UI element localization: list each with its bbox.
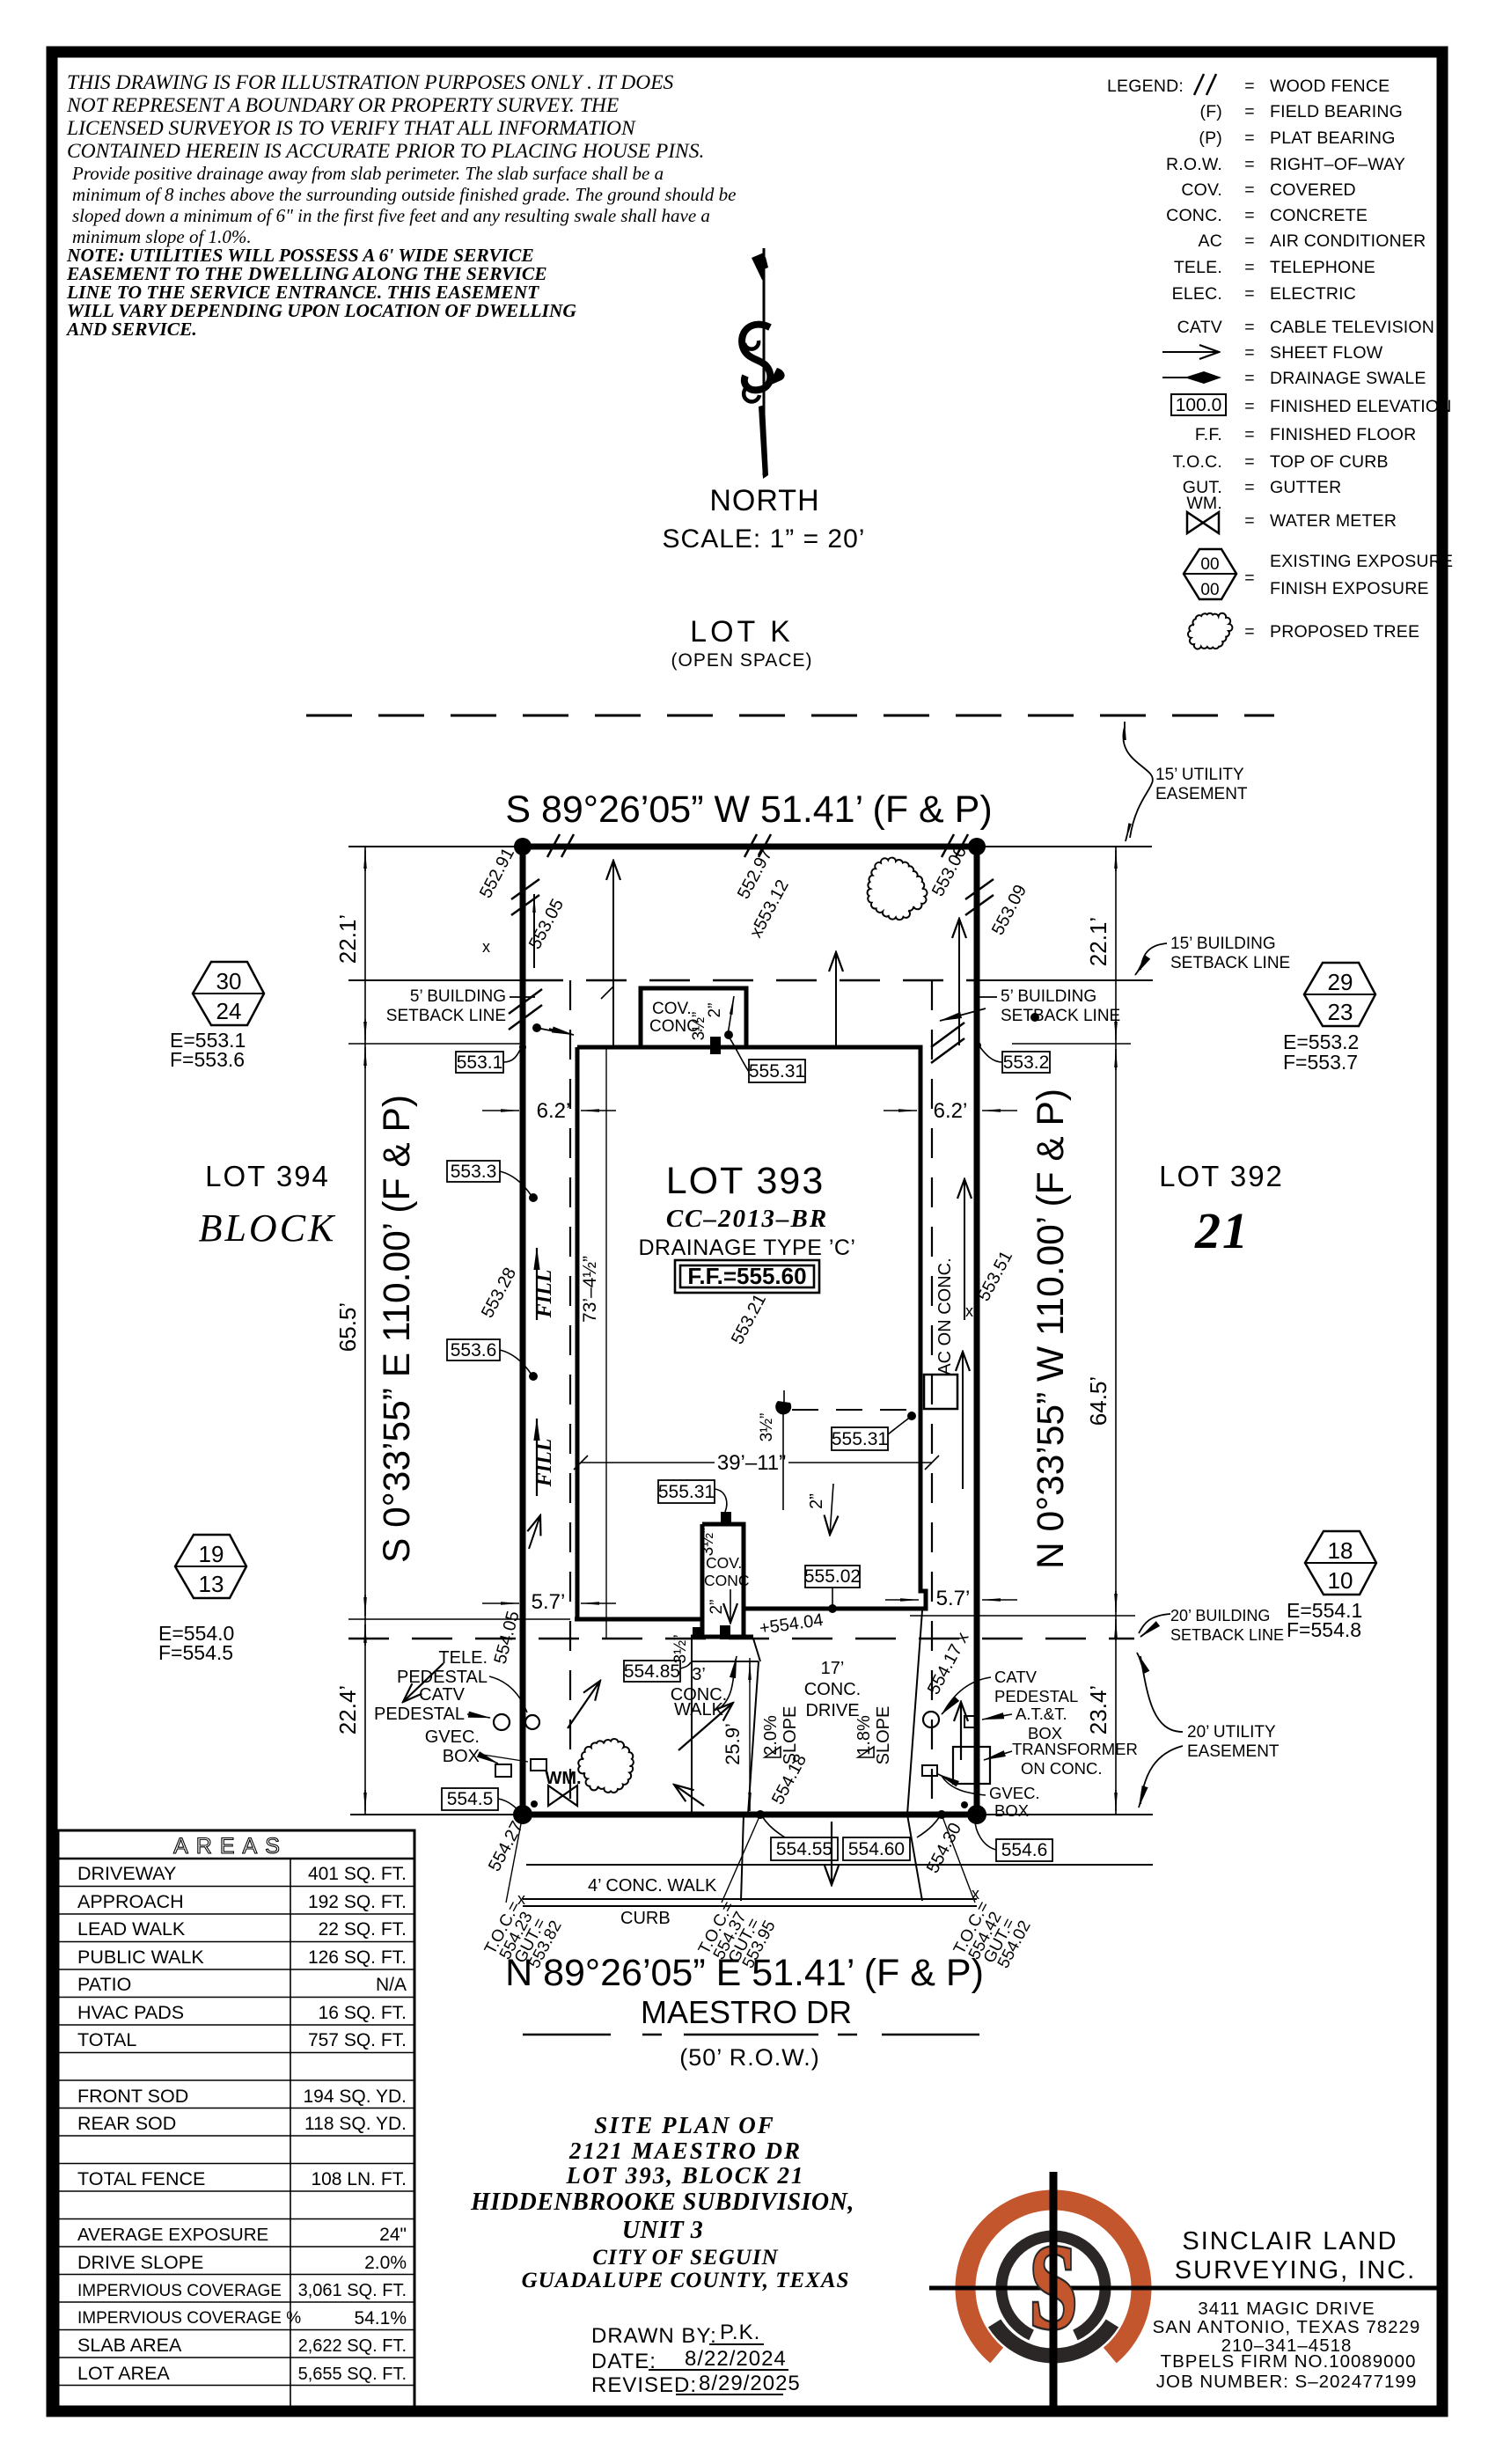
svg-text:=: = [1244,231,1255,251]
svg-text:5,655 SQ. FT.: 5,655 SQ. FT. [298,2365,407,2384]
svg-text:=: = [1244,128,1255,148]
svg-text:PATIO: PATIO [77,1974,131,1995]
svg-text:22.1’: 22.1’ [334,914,361,964]
svg-text:SAN ANTONIO, TEXAS 78229: SAN ANTONIO, TEXAS 78229 [1153,2317,1421,2337]
svg-text:23: 23 [1328,999,1353,1025]
svg-text:401 SQ. FT.: 401 SQ. FT. [308,1864,407,1884]
svg-text:=: = [1244,369,1255,388]
svg-text:=: = [1244,343,1255,363]
svg-text:=: = [1244,425,1255,444]
svg-text:3,061 SQ. FT.: 3,061 SQ. FT. [298,2281,407,2300]
svg-text:39’–11”: 39’–11” [717,1451,786,1475]
svg-text:CATV: CATV [994,1668,1038,1686]
svg-text:2”: 2” [807,1493,826,1509]
svg-text:WATER METER: WATER METER [1270,511,1397,531]
svg-text:CATV: CATV [1177,318,1222,337]
svg-text:555.02: 555.02 [804,1566,861,1587]
svg-text:UNIT 3: UNIT 3 [622,2217,703,2244]
svg-text:AIR CONDITIONER: AIR CONDITIONER [1270,231,1426,251]
svg-text:00: 00 [1200,581,1219,599]
svg-text:757 SQ. FT.: 757 SQ. FT. [308,2030,407,2050]
svg-text:SLAB AREA: SLAB AREA [77,2335,182,2356]
svg-text:16 SQ. FT.: 16 SQ. FT. [319,2003,407,2023]
svg-text:R.O.W.: R.O.W. [1166,155,1222,174]
svg-text:126 SQ. FT.: 126 SQ. FT. [308,1947,407,1968]
svg-text:SINCLAIR LAND: SINCLAIR LAND [1182,2227,1397,2255]
svg-text:65.5’: 65.5’ [334,1302,361,1352]
svg-text:SLOPE: SLOPE [874,1706,893,1765]
svg-text:FINISHED ELEVATION: FINISHED ELEVATION [1270,397,1452,416]
svg-text:AC: AC [1199,231,1223,251]
svg-text:N 89°26’05” E 51.41’ (F &: N 89°26’05” E 51.41’ (F & P) [505,1952,984,1994]
svg-text:553.6: 553.6 [451,1340,497,1360]
svg-text:GUADALUPE COUNTY, TEXAS: GUADALUPE COUNTY, TEXAS [522,2269,850,2292]
svg-text:F=553.6: F=553.6 [170,1048,245,1071]
svg-text:3411 MAGIC DRIVE: 3411 MAGIC DRIVE [1198,2299,1375,2319]
svg-text:CATV: CATV [419,1685,466,1705]
svg-text:TOP OF CURB: TOP OF CURB [1270,452,1389,472]
svg-text:ON CONC.: ON CONC. [1021,1759,1103,1778]
svg-text:x: x [482,938,490,956]
svg-text:24: 24 [216,998,242,1024]
svg-text:N 0°33’55” W 110.00’ (F &: N 0°33’55” W 110.00’ (F & P) [1030,1089,1072,1569]
svg-text:AND SERVICE.: AND SERVICE. [65,319,197,340]
svg-text:CONC.: CONC. [804,1680,861,1699]
svg-text:=: = [1244,568,1255,588]
svg-text:CONC: CONC [704,1572,750,1589]
svg-text:JOB NUMBER: S–202477199: JOB NUMBER: S–202477199 [1156,2372,1417,2392]
svg-text:NORTH: NORTH [709,484,819,517]
svg-text:LICENSED SURVEYOR IS TO VERIFY: LICENSED SURVEYOR IS TO VERIFY THAT ALL … [66,117,636,140]
svg-text:FINISH EXPOSURE: FINISH EXPOSURE [1270,579,1429,598]
svg-text:ELECTRIC: ELECTRIC [1270,284,1356,304]
svg-text:BOX: BOX [994,1801,1029,1820]
svg-text:13: 13 [199,1571,224,1597]
svg-text:RIGHT–OF–WAY: RIGHT–OF–WAY [1270,155,1405,174]
svg-text:IMPERVIOUS COVERAGE %: IMPERVIOUS COVERAGE % [77,2309,301,2328]
svg-text:2,622 SQ. FT.: 2,622 SQ. FT. [298,2336,407,2356]
svg-text:REVISED:: REVISED: [591,2373,697,2397]
svg-text:A.T.&T.: A.T.&T. [1016,1705,1067,1723]
svg-text:10: 10 [1328,1567,1353,1594]
svg-text:20’ BUILDING: 20’ BUILDING [1170,1607,1270,1624]
svg-text:8/22/2024: 8/22/2024 [685,2347,787,2371]
svg-text:CONC.: CONC. [1166,206,1222,225]
svg-text:2”: 2” [706,1003,724,1018]
svg-text:SETBACK LINE: SETBACK LINE [386,1007,506,1025]
svg-text:LOT 394: LOT 394 [205,1160,330,1192]
svg-text:PEDESTAL: PEDESTAL [374,1705,465,1724]
svg-text:TOTAL FENCE: TOTAL FENCE [77,2168,205,2189]
svg-text:CURB: CURB [620,1909,671,1928]
svg-text:IMPERVIOUS COVERAGE: IMPERVIOUS COVERAGE [77,2282,282,2300]
svg-text:FINISHED FLOOR: FINISHED FLOOR [1270,425,1416,444]
svg-text:2.0%: 2.0% [364,2253,407,2273]
svg-text:554.5: 554.5 [447,1789,494,1809]
svg-text:PEDESTAL: PEDESTAL [994,1687,1078,1705]
svg-text:108 LN. FT.: 108 LN. FT. [311,2169,407,2189]
svg-text:CONTAINED HEREIN IS ACCURATE P: CONTAINED HEREIN IS ACCURATE PRIOR TO PL… [67,140,704,163]
svg-text:NOT REPRESENT A BOUNDARY OR PR: NOT REPRESENT A BOUNDARY OR PROPERTY SUR… [66,94,619,117]
svg-text:COV.: COV. [652,1000,692,1018]
svg-text:(P): (P) [1199,128,1222,148]
svg-text:CITY OF SEGUIN: CITY OF SEGUIN [592,2246,778,2270]
svg-text:19: 19 [199,1541,224,1567]
svg-text:=: = [1244,102,1255,121]
svg-text:LOT 392: LOT 392 [1159,1160,1284,1192]
svg-text:PLAT BEARING: PLAT BEARING [1270,128,1396,148]
svg-text:x: x [965,1302,973,1320]
svg-text:21: 21 [1194,1202,1250,1259]
svg-text:TELE.: TELE. [1174,258,1222,277]
svg-text:N/A: N/A [376,1975,407,1995]
svg-text:SCALE: 1” = 20’: SCALE: 1” = 20’ [663,524,866,554]
svg-text:WM.: WM. [545,1769,581,1788]
svg-text:HVAC PADS: HVAC PADS [77,2002,184,2023]
svg-text:6.2’: 6.2’ [537,1099,571,1123]
svg-text:P.K.: P.K. [720,2321,760,2344]
svg-text:=: = [1244,206,1255,225]
svg-text:=: = [1244,258,1255,277]
svg-text:553.1: 553.1 [457,1052,503,1073]
svg-text:CONCRETE: CONCRETE [1270,206,1368,225]
svg-text:554.55: 554.55 [776,1839,832,1859]
svg-text:SETBACK LINE: SETBACK LINE [1001,1007,1120,1025]
svg-text:LOT AREA: LOT AREA [77,2363,170,2384]
svg-text:EXISTING EXPOSURE: EXISTING EXPOSURE [1270,552,1453,571]
svg-text:555.31: 555.31 [658,1482,715,1502]
svg-text:COV.: COV. [1181,180,1222,200]
svg-text:3½”: 3½” [699,1528,717,1557]
svg-text:LEAD WALK: LEAD WALK [77,1918,186,1940]
svg-text:4’ CONC. WALK: 4’ CONC. WALK [588,1876,717,1896]
svg-text:25.9’: 25.9’ [722,1723,744,1765]
svg-text:MAESTRO DR: MAESTRO DR [641,1994,852,2030]
svg-text:SITE PLAN OF: SITE PLAN OF [594,2112,775,2138]
svg-text:22 SQ. FT.: 22 SQ. FT. [319,1919,407,1940]
svg-text:=: = [1244,511,1255,531]
svg-text:EASEMENT: EASEMENT [1187,1742,1280,1761]
svg-text:F.F.: F.F. [1195,425,1222,444]
svg-text:DRAWN BY:: DRAWN BY: [591,2324,717,2348]
svg-text:CC–2013–BR: CC–2013–BR [666,1205,828,1233]
svg-text:64.5’: 64.5’ [1085,1376,1111,1426]
svg-text:15’ BUILDING: 15’ BUILDING [1170,935,1276,953]
svg-text:AREAS: AREAS [173,1834,288,1859]
svg-text:S 89°26’05” W 51.41’ (F &: S 89°26’05” W 51.41’ (F & P) [505,788,992,831]
svg-text:30: 30 [216,968,242,994]
svg-text:54.1%: 54.1% [354,2308,407,2328]
svg-text:73’–4½”: 73’–4½” [580,1256,600,1323]
svg-text:minimum of 8 inches above the: minimum of 8 inches above the surroundin… [72,184,736,205]
svg-text:17’: 17’ [821,1659,845,1678]
svg-text:S 0°33’55” E 110.00’ (F &: S 0°33’55” E 110.00’ (F & P) [377,1095,418,1563]
svg-text:F=554.8: F=554.8 [1287,1618,1361,1641]
svg-text:=: = [1244,452,1255,472]
svg-text:00: 00 [1200,555,1219,574]
svg-text:THIS DRAWING IS FOR ILLUSTRATI: THIS DRAWING IS FOR ILLUSTRATION PURPOSE… [67,71,674,94]
svg-text:SETBACK LINE: SETBACK LINE [1170,1626,1284,1644]
svg-text:LOT K: LOT K [690,615,794,649]
svg-text:SETBACK LINE: SETBACK LINE [1170,954,1290,972]
svg-text:PUBLIC WALK: PUBLIC WALK [77,1947,204,1968]
svg-text:SHEET FLOW: SHEET FLOW [1270,343,1383,363]
svg-text:=: = [1244,180,1255,200]
svg-text:DRAINAGE TYPE ’C’: DRAINAGE TYPE ’C’ [639,1236,856,1260]
svg-text:5.7’: 5.7’ [532,1590,566,1614]
svg-text:20’ UTILITY: 20’ UTILITY [1187,1723,1276,1742]
svg-text:LEGEND:: LEGEND: [1107,77,1184,96]
svg-text:GUTTER: GUTTER [1270,478,1341,497]
svg-text:8/29/2025: 8/29/2025 [699,2372,801,2395]
svg-text:PROPOSED TREE: PROPOSED TREE [1270,622,1419,642]
svg-text:18: 18 [1328,1537,1353,1564]
svg-text:APPROACH: APPROACH [77,1891,184,1912]
svg-text:EASEMENT: EASEMENT [1155,785,1248,803]
svg-text:REAR SOD: REAR SOD [77,2113,176,2134]
svg-text:192 SQ. FT.: 192 SQ. FT. [308,1892,407,1912]
svg-text:553.3: 553.3 [451,1162,497,1182]
svg-text:FIELD BEARING: FIELD BEARING [1270,102,1403,121]
svg-text:TELE.: TELE. [438,1648,488,1668]
svg-text:GVEC.: GVEC. [989,1784,1040,1802]
svg-text:=: = [1244,155,1255,174]
svg-text:29: 29 [1328,969,1353,995]
svg-text:5.7’: 5.7’ [936,1587,971,1610]
svg-text:555.31: 555.31 [832,1429,888,1449]
svg-text:3½”: 3½” [671,1635,690,1664]
svg-text:TBPELS FIRM NO.10089000: TBPELS FIRM NO.10089000 [1161,2351,1417,2372]
svg-text:COVERED: COVERED [1270,180,1356,200]
svg-text:TELEPHONE: TELEPHONE [1270,258,1375,277]
svg-text:SURVEYING, INC.: SURVEYING, INC. [1175,2256,1416,2284]
svg-text:2121 MAESTRO DR: 2121 MAESTRO DR [568,2138,802,2164]
svg-text:=: = [1244,284,1255,304]
svg-text:=: = [1244,397,1255,416]
svg-text:6.2’: 6.2’ [934,1099,968,1123]
svg-text:DRAINAGE SWALE: DRAINAGE SWALE [1270,369,1426,388]
svg-text:ELEC.: ELEC. [1172,284,1222,304]
svg-text:WM.: WM. [1186,494,1222,513]
svg-text:3½”: 3½” [758,1413,776,1442]
svg-text:F=553.7: F=553.7 [1283,1051,1358,1074]
svg-text:WOOD FENCE: WOOD FENCE [1270,77,1390,96]
svg-text:T.O.C.: T.O.C. [1173,452,1222,472]
svg-text:DATE:: DATE: [591,2350,656,2373]
svg-text:LOT 393: LOT 393 [666,1160,825,1202]
svg-text:118 SQ. YD.: 118 SQ. YD. [304,2114,407,2134]
svg-text:COV.: COV. [706,1554,742,1572]
svg-text:F.F.=555.60: F.F.=555.60 [687,1263,806,1289]
svg-text:22.4’: 22.4’ [334,1685,361,1734]
svg-text:=: = [1244,478,1255,497]
svg-text:554.6: 554.6 [1001,1840,1048,1860]
svg-text:AVERAGE EXPOSURE: AVERAGE EXPOSURE [77,2225,268,2245]
svg-text:=: = [1244,622,1255,642]
svg-text:PEDESTAL: PEDESTAL [397,1668,488,1687]
svg-text:24": 24" [379,2225,407,2245]
svg-text:GVEC.: GVEC. [425,1727,480,1747]
svg-text:23.4’: 23.4’ [1085,1685,1111,1734]
svg-text:DRIVE SLOPE: DRIVE SLOPE [77,2252,203,2273]
svg-text:Provide positive drainage away: Provide positive drainage away from slab… [71,163,664,184]
svg-text:22.1’: 22.1’ [1085,917,1111,966]
svg-text:194 SQ. YD.: 194 SQ. YD. [303,2086,407,2107]
svg-text:F=554.5: F=554.5 [158,1641,233,1664]
svg-text:3’: 3’ [692,1665,706,1684]
svg-text:555.31: 555.31 [749,1061,805,1082]
svg-text:554.60: 554.60 [848,1839,905,1859]
svg-text:=: = [1244,318,1255,337]
svg-text:2”: 2” [708,1600,726,1615]
svg-text:FRONT SOD: FRONT SOD [77,2086,188,2107]
svg-text:(F): (F) [1200,102,1223,121]
svg-text:TOTAL: TOTAL [77,2029,136,2050]
svg-text:(OPEN SPACE): (OPEN SPACE) [671,650,813,671]
svg-text:AC ON CONC.: AC ON CONC. [935,1258,955,1375]
svg-text:5’ BUILDING: 5’ BUILDING [1001,987,1096,1006]
svg-text:5’ BUILDING: 5’ BUILDING [410,987,506,1006]
svg-text:BOX: BOX [443,1747,480,1766]
svg-text:sloped down a minimum of 6" in: sloped down a minimum of 6" in the first… [72,205,710,226]
svg-text:BLOCK: BLOCK [199,1206,337,1250]
svg-text:CABLE TELEVISION: CABLE TELEVISION [1270,318,1434,337]
svg-text:LOT 393, BLOCK 21: LOT 393, BLOCK 21 [565,2162,804,2189]
svg-text:100.0: 100.0 [1176,395,1222,415]
svg-text:TRANSFORMER: TRANSFORMER [1012,1740,1138,1758]
svg-text:HIDDENBROOKE SUBDIVISION,: HIDDENBROOKE SUBDIVISION, [470,2189,854,2216]
svg-text:=: = [1244,77,1255,96]
svg-text:15’ UTILITY: 15’ UTILITY [1155,766,1244,784]
svg-text:(50’ R.O.W.): (50’ R.O.W.) [679,2044,820,2071]
svg-text:DRIVEWAY: DRIVEWAY [77,1863,176,1884]
svg-text:553.2: 553.2 [1003,1052,1050,1073]
svg-text:554.85: 554.85 [624,1661,680,1682]
svg-text:DRIVE: DRIVE [805,1701,859,1720]
